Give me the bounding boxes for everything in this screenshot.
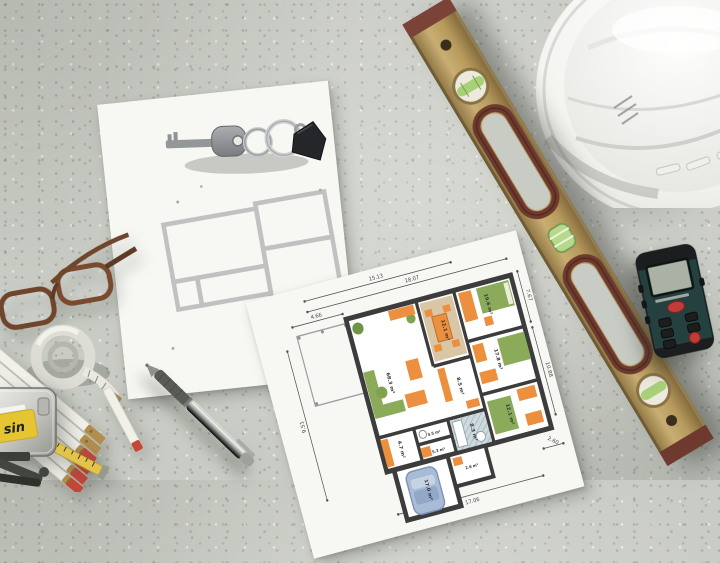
ballpoint-pen (118, 342, 288, 512)
dim-label: 9.51 (299, 420, 308, 433)
construction-flatlay-photo: { "scene": { "surface": "concrete", "bac… (0, 0, 720, 480)
dim-label: 18.07 (404, 275, 420, 285)
dim-label: 7.67 (524, 289, 533, 302)
dim-label: 15.13 (368, 273, 384, 283)
glasses-temple (103, 248, 138, 267)
tape-lock-slider (38, 398, 49, 415)
key (165, 126, 246, 159)
house-keys (158, 99, 333, 185)
pen-barrel (185, 399, 248, 460)
corner-hand-tool (0, 438, 80, 498)
dim-label: 2.60 (547, 436, 560, 447)
pen-grip (152, 368, 191, 406)
dim-label: 17.06 (465, 497, 481, 507)
